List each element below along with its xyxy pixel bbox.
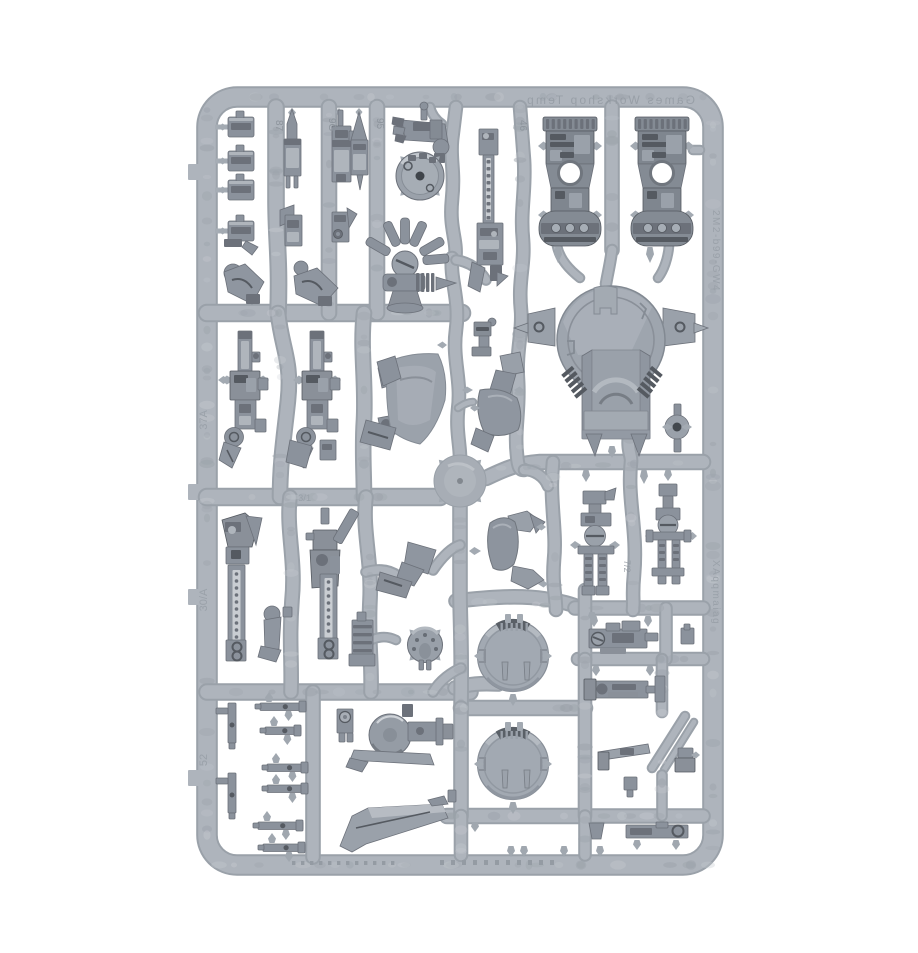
svg-text:Games Workshop Temp: Games Workshop Temp — [525, 93, 695, 107]
svg-text:7/2: 7/2 — [622, 560, 632, 573]
svg-text:46: 46 — [517, 120, 528, 132]
svg-text:XAqqmaiag: XAqqmaiag — [710, 560, 721, 625]
svg-text:3/1: 3/1 — [298, 493, 311, 504]
svg-text:87: 87 — [273, 120, 284, 132]
svg-text:37A: 37A — [198, 410, 210, 430]
svg-text:2M2-b99-GW4: 2M2-b99-GW4 — [710, 210, 721, 292]
svg-text:30/A: 30/A — [198, 588, 210, 611]
svg-text:9G: 9G — [326, 118, 337, 132]
svg-text:52: 52 — [198, 754, 210, 766]
svg-text:95: 95 — [374, 118, 385, 130]
